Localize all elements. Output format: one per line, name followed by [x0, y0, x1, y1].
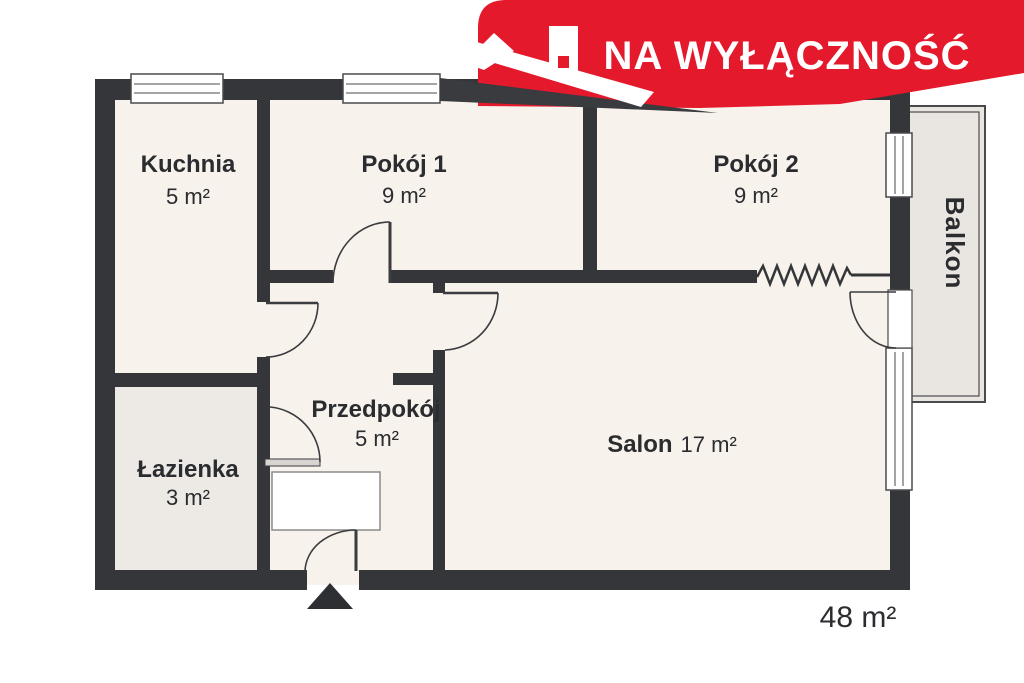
window-room1 [343, 74, 440, 103]
wall-bottom-right [359, 570, 910, 590]
wall-right-lower [890, 490, 910, 590]
hall-wardrobe [272, 472, 380, 530]
exclusive-banner: NA WYŁĄCZNOŚĆ [440, 0, 1024, 113]
wall-hall-stub [393, 373, 433, 385]
wall-room2-bottom [597, 270, 757, 283]
wall-room1-bottom-b [390, 270, 597, 283]
balcony-label: Balkon [940, 197, 970, 290]
room-area-pokoj1: 9 m² [382, 183, 426, 208]
wall-kitchen-bathroom-divider [112, 373, 257, 387]
entrance-arrow-icon [307, 583, 353, 609]
room-label-salon: Salon17 m² [607, 431, 737, 458]
floor-plan: Kuchnia 5 m² Pokój 1 9 m² Pokój 2 9 m² Ł… [95, 74, 985, 634]
room-label-pokoj1: Pokój 1 [361, 151, 446, 178]
room-label-pokoj2: Pokój 2 [713, 151, 798, 178]
window-room2-balcony [886, 133, 912, 197]
wall-hall-salon-stub-top [433, 283, 445, 293]
room-area-pokoj2: 9 m² [734, 183, 778, 208]
wall-left [95, 79, 115, 590]
wall-hall-salon [433, 350, 445, 572]
room-area-przedpokoj: 5 m² [355, 426, 399, 451]
wall-room1-room2-divider [583, 100, 597, 270]
balcony-door-frame [888, 290, 912, 348]
window-kitchen [131, 74, 223, 103]
room-label-przedpokoj: Przedpokój [311, 396, 440, 423]
room-label-kuchnia: Kuchnia [141, 151, 236, 178]
room-area-kuchnia: 5 m² [166, 184, 210, 209]
room-area-lazienka: 3 m² [166, 485, 210, 510]
wall-bottom-left [95, 570, 307, 590]
floor-plan-image: Kuchnia 5 m² Pokój 1 9 m² Pokój 2 9 m² Ł… [0, 0, 1024, 683]
wall-room1-bottom-a [257, 270, 333, 283]
floor-plan-svg: Kuchnia 5 m² Pokój 1 9 m² Pokój 2 9 m² Ł… [0, 0, 1024, 683]
room-label-lazienka: Łazienka [137, 456, 239, 483]
banner-text: NA WYŁĄCZNOŚĆ [603, 32, 970, 78]
window-salon [886, 348, 912, 490]
total-area-label: 48 m² [820, 601, 897, 634]
